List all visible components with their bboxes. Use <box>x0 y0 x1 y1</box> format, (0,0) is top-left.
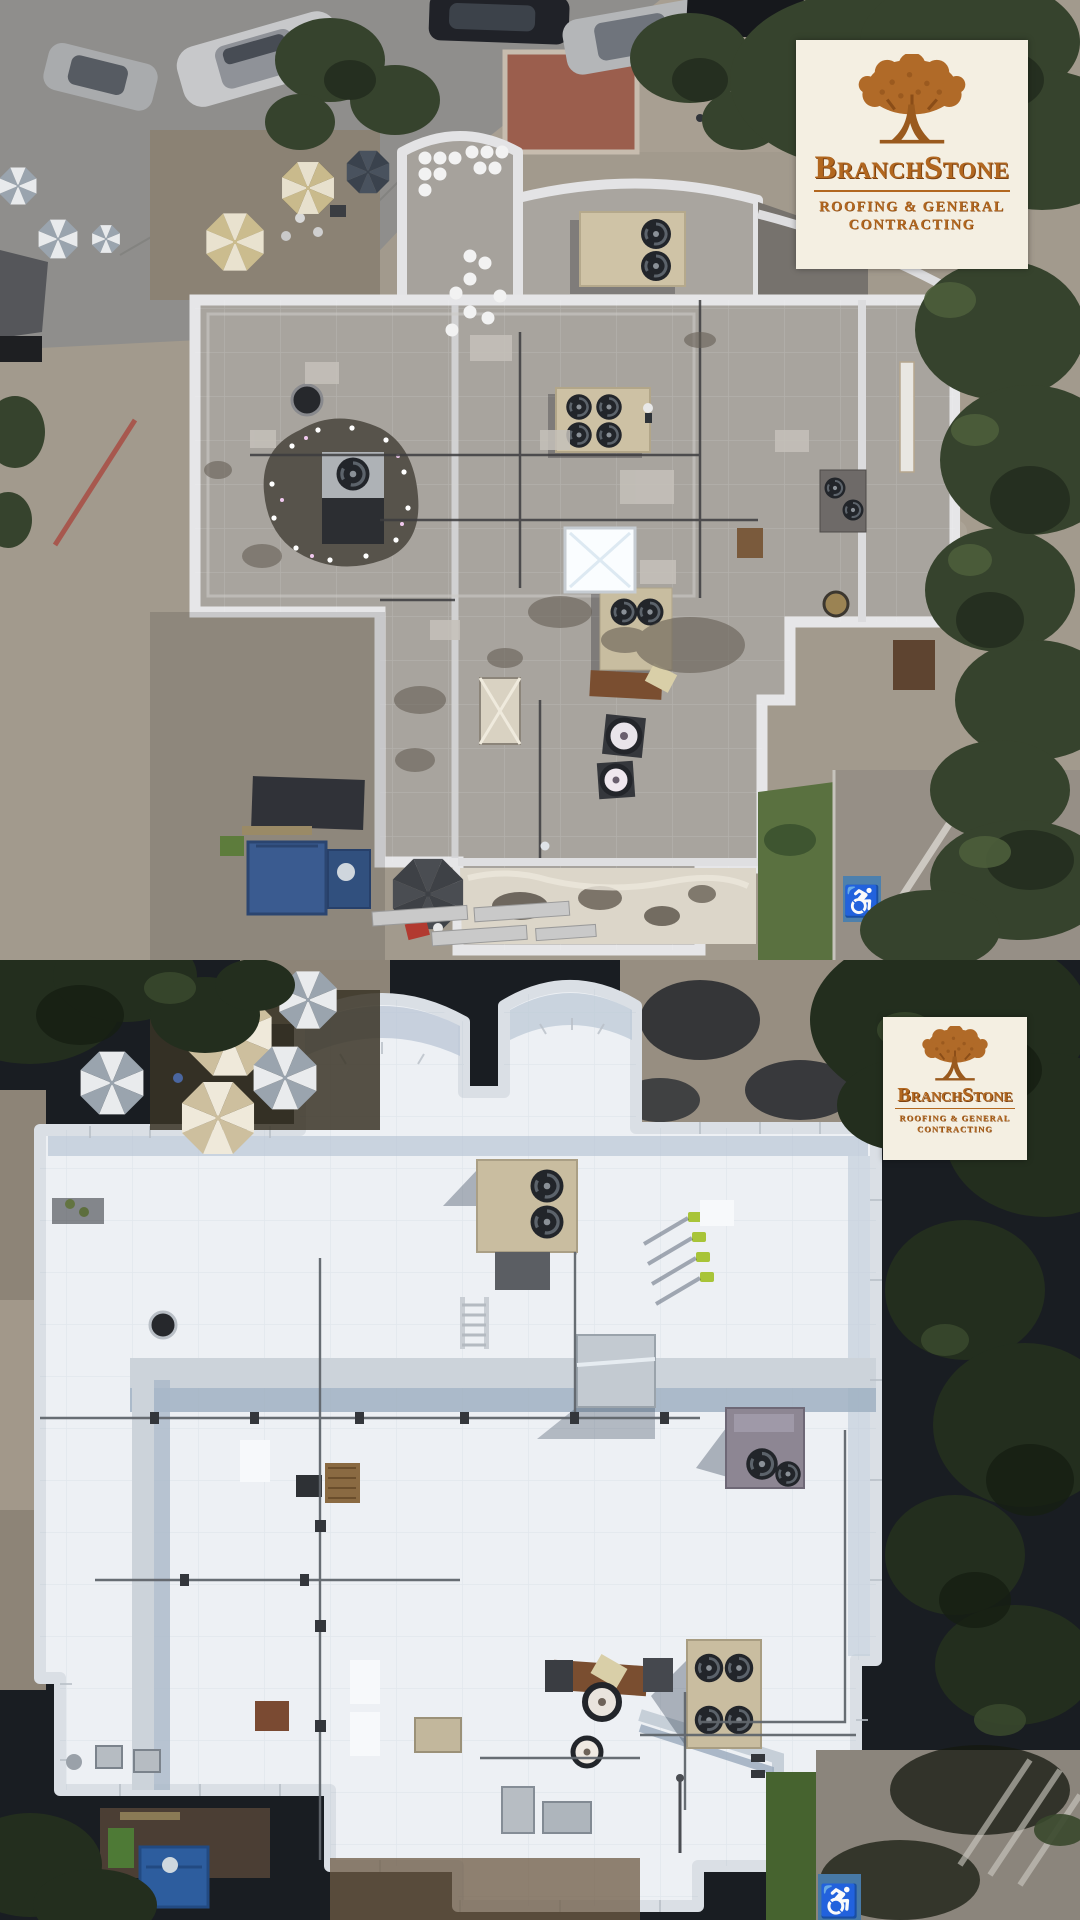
wood-strip <box>120 1812 180 1820</box>
shrub <box>764 824 816 856</box>
branchstone-logo-badge: BranchStone ROOFING & GENERAL CONTRACTIN… <box>796 40 1028 269</box>
logo-tagline-1: ROOFING & GENERAL <box>900 1113 1011 1124</box>
satellite-dish <box>66 1754 82 1770</box>
logo-tagline-1: ROOFING & GENERAL <box>819 198 1005 216</box>
green-crates <box>108 1828 134 1868</box>
umbrella-striped <box>39 220 78 259</box>
roof-plank <box>900 362 914 472</box>
logo-divider <box>814 190 1010 192</box>
hvac-unit <box>570 212 685 294</box>
adjacent-roof-shadow <box>0 336 42 362</box>
umbrella-navy <box>347 151 390 194</box>
curb-opening <box>643 1658 673 1692</box>
worker-on-roof <box>643 403 653 413</box>
patio <box>150 130 380 300</box>
adjacent-roof-corner <box>0 250 48 338</box>
umbrella-striped <box>254 1047 317 1110</box>
skylight-small <box>480 678 520 744</box>
logo-divider <box>895 1108 1015 1109</box>
umbrella-striped <box>0 168 36 205</box>
curb-opening <box>545 1660 573 1692</box>
parapet-shadow-north <box>48 1136 868 1156</box>
worker-shadow <box>645 413 652 423</box>
logo-wordmark: BranchStone <box>815 152 1010 185</box>
accessible-symbol: ♿ <box>819 1883 859 1919</box>
umbrella-striped <box>92 225 120 253</box>
logo-tagline-2: CONTRACTING <box>849 216 976 234</box>
before-after-photo-collage: ♿ TO GO ONLY <box>0 0 1080 1920</box>
umbrella-tan <box>282 162 334 214</box>
person <box>173 1073 183 1083</box>
dark-shed-roof <box>251 776 365 830</box>
umbrella-striped <box>81 1052 144 1115</box>
branchstone-logo-badge: BranchStone ROOFING & GENERAL CONTRACTIN… <box>883 1017 1027 1160</box>
oak-tree-icon <box>917 1026 993 1084</box>
logo-wordmark: BranchStone <box>897 1085 1012 1105</box>
round-vent <box>150 1312 176 1338</box>
tank-vent <box>292 385 322 415</box>
logo-tagline-2: CONTRACTING <box>917 1124 993 1135</box>
hvac-unit <box>820 470 866 532</box>
car <box>428 0 570 45</box>
umbrella-tan <box>182 1082 254 1154</box>
person <box>541 842 550 851</box>
oak-tree-icon <box>850 54 974 150</box>
brass-vent <box>824 592 848 616</box>
brown-chimney <box>893 640 935 690</box>
rust-box <box>255 1701 289 1731</box>
brown-box <box>737 528 763 558</box>
umbrella-tan <box>206 213 263 270</box>
standpipe-cap <box>676 1774 684 1782</box>
